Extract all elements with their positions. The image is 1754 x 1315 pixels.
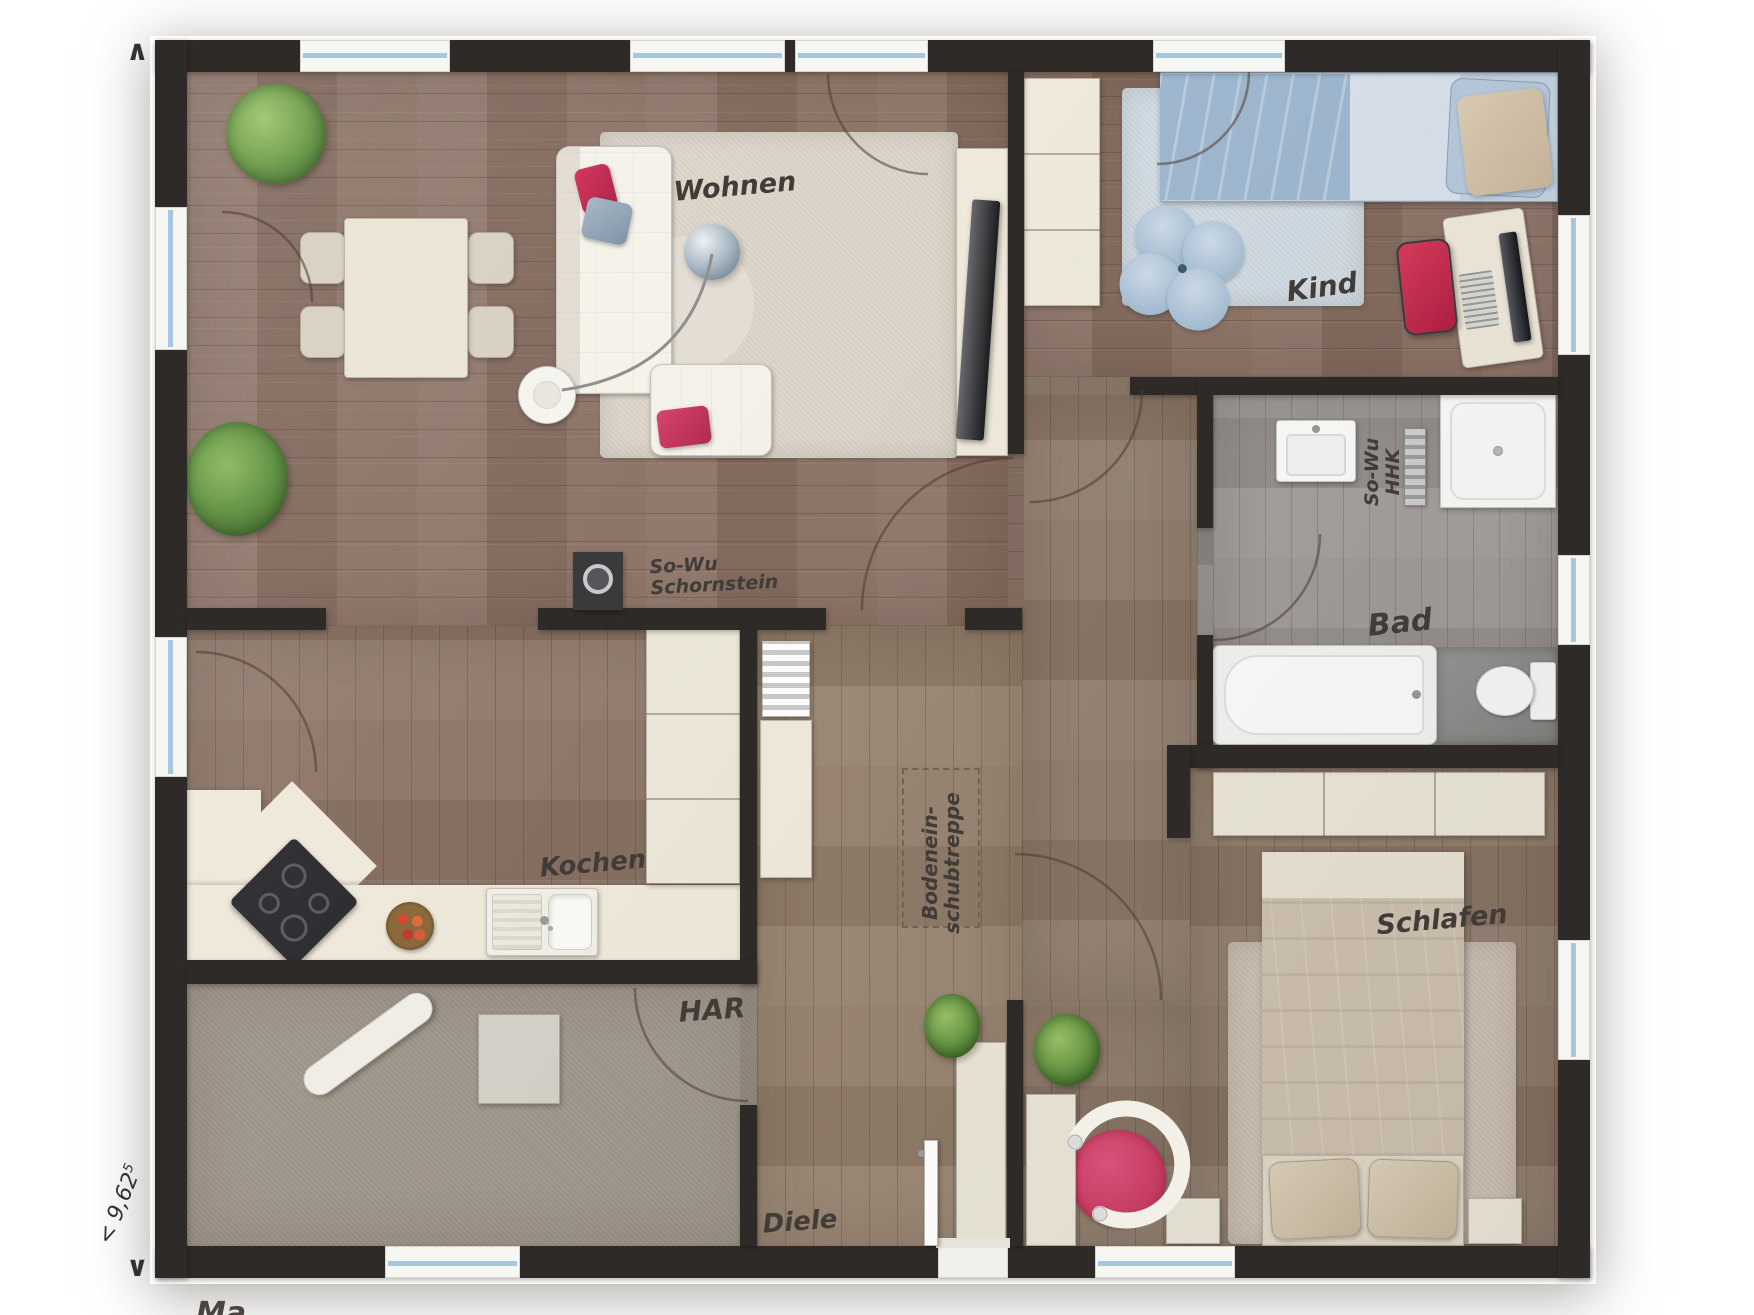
bench-foot xyxy=(1068,1135,1082,1149)
dimension-arrow-bottom: ∨ xyxy=(126,1250,149,1283)
arc-lamp-arm xyxy=(562,254,712,390)
chimney-label: So-Wu Schornstein xyxy=(649,551,779,600)
terrace-door-arc xyxy=(196,652,316,772)
hhk-label-line2: HHK xyxy=(1383,402,1404,542)
room-label-har: HAR xyxy=(678,991,747,1029)
dimension-arrow-top: ∧ xyxy=(126,34,149,67)
attic-label-line2: schubtreppe xyxy=(941,783,963,943)
floorplan-canvas: Wohnen Kind Bad Kochen HAR Diele Schlafe… xyxy=(0,0,1754,1315)
cutoff-text: Ma xyxy=(196,1296,246,1315)
bad-door-arc xyxy=(1214,534,1320,640)
kind-door-arc xyxy=(1030,390,1142,502)
room-label-bad: Bad xyxy=(1366,602,1434,644)
window-swing-arc xyxy=(828,74,928,174)
curved-bench xyxy=(1075,1109,1182,1221)
window-swing-arc xyxy=(222,212,312,302)
window-swing-arc xyxy=(1157,72,1249,164)
wohnen-door-arc xyxy=(862,458,1014,610)
attic-label: Bodenein- schubtreppe xyxy=(919,783,963,943)
bench-foot xyxy=(1093,1207,1107,1221)
door-swing-overlay xyxy=(0,0,1754,1315)
room-label-diele: Diele xyxy=(762,1204,839,1239)
schlafen-door-arc xyxy=(1015,854,1161,1000)
attic-label-line1: Bodenein- xyxy=(919,783,941,943)
hhk-label-line1: So-Wu xyxy=(1362,402,1383,542)
hhk-label: So-Wu HHK xyxy=(1362,402,1404,542)
